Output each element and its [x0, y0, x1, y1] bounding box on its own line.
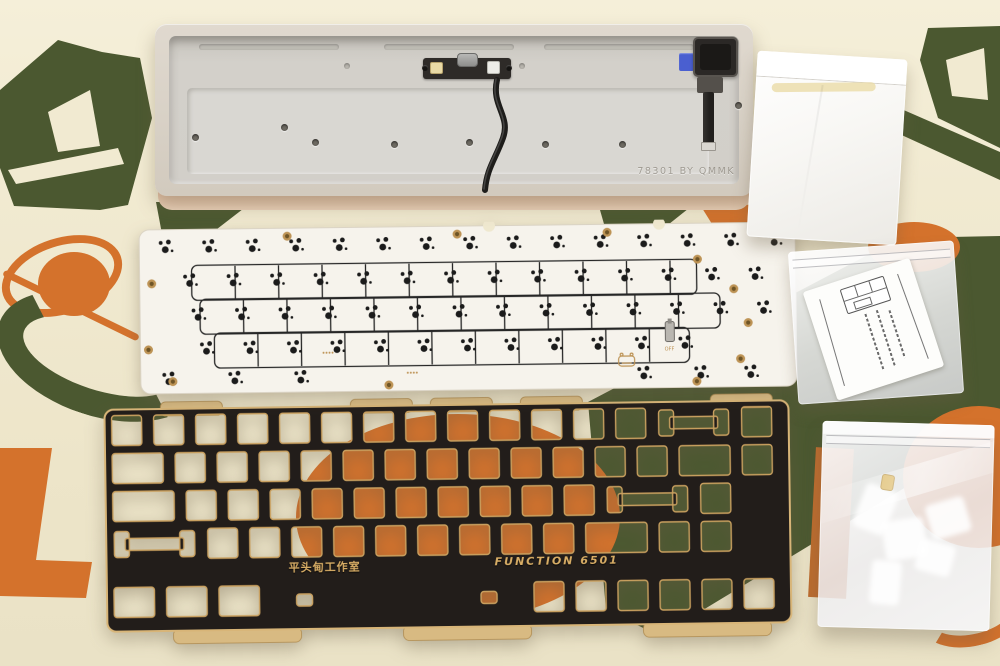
power-switch-nub [668, 319, 672, 324]
keyboard-case: 78301 BY QMMK [155, 24, 753, 210]
module-ribbon-cable [703, 92, 714, 148]
usb-module [693, 37, 738, 77]
jst-cable [445, 72, 535, 202]
power-switch-component [665, 321, 674, 341]
daughterboard-screw [422, 65, 428, 71]
usb-module-window [700, 44, 731, 70]
module-base [697, 77, 723, 93]
bag-zip-seal [792, 249, 950, 269]
card-table-line [854, 286, 858, 297]
pcb-graphic: OFF [137, 218, 799, 398]
stabilizer-part [924, 495, 973, 541]
case-screw-hole [312, 139, 319, 146]
case-screw-hole [735, 102, 742, 109]
bag-crease [797, 85, 824, 233]
stabilizer-part [868, 559, 902, 606]
case-post-hole [519, 63, 525, 69]
case-screw-hole [619, 141, 626, 148]
blue-latch [679, 53, 694, 71]
bag-content-hint [772, 82, 876, 92]
stabilizer-part [914, 538, 957, 578]
accessory-bag-stabilizers [817, 421, 994, 631]
card-rule-line [819, 299, 845, 386]
keyboard-kit-photo: 平头甸工作室 FUNCTION 6501 OFF [0, 0, 1000, 666]
keyboard-pcb: OFF [137, 218, 799, 398]
daughterboard-screw [506, 65, 512, 71]
case-body: 78301 BY QMMK [155, 24, 753, 196]
case-screw-hole [542, 141, 549, 148]
accessory-bag-paper [746, 51, 907, 246]
case-slot [544, 44, 694, 50]
plate-studio-label: 平头甸工作室 [289, 558, 361, 575]
card-table [840, 276, 892, 315]
card-table-line [868, 281, 872, 292]
case-slot [199, 44, 339, 50]
switch-mark-label: OFF [665, 346, 675, 352]
accessory-bag-screws [788, 240, 964, 404]
case-screw-hole [281, 124, 288, 131]
case-screw-hole [391, 141, 398, 148]
plate-model-label: FUNCTION 6501 [494, 554, 618, 569]
plate-graphic [100, 392, 795, 650]
case-slot [384, 44, 514, 50]
ribbon-connector [701, 142, 716, 151]
instruction-card [803, 258, 945, 401]
case-screw-hole [192, 134, 199, 141]
card-table-cell [853, 297, 873, 310]
jst-connector-left [430, 62, 443, 74]
case-engraving-text: 78301 BY QMMK [585, 166, 735, 177]
usb-c-port [457, 53, 478, 67]
switch-plate: 平头甸工作室 FUNCTION 6501 [100, 392, 795, 650]
case-post-hole [344, 63, 350, 69]
